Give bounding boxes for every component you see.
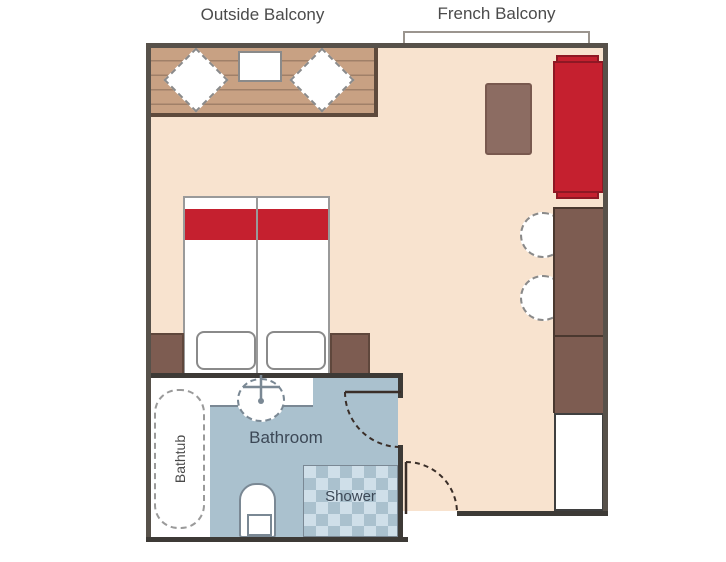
nightstand bbox=[148, 333, 184, 375]
bathtub-label: Bathtub bbox=[170, 399, 190, 519]
toilet-icon bbox=[239, 483, 276, 538]
balcony-table bbox=[238, 51, 282, 82]
sofa-seat bbox=[553, 61, 604, 193]
bathroom-wall-right bbox=[398, 373, 403, 398]
bathroom-wall-bottom bbox=[146, 537, 408, 542]
side-table bbox=[485, 83, 532, 155]
bathroom-wall-right bbox=[398, 445, 403, 542]
wall-right bbox=[603, 43, 608, 516]
closet bbox=[554, 413, 604, 511]
outside-balcony-label: Outside Balcony bbox=[146, 5, 379, 25]
desk-counter bbox=[553, 207, 603, 413]
toilet-seat bbox=[247, 514, 272, 536]
counter-divider bbox=[555, 335, 603, 337]
sink-icon bbox=[237, 378, 285, 422]
french-balcony-label: French Balcony bbox=[403, 4, 590, 24]
sofa bbox=[551, 55, 603, 195]
bathroom-label: Bathroom bbox=[211, 428, 361, 448]
cabin-floor-plan: Outside Balcony French Balcony Bathroom … bbox=[0, 0, 726, 562]
shower-label: Shower bbox=[303, 488, 398, 505]
wall-bottom bbox=[457, 511, 608, 516]
wall-left bbox=[146, 43, 151, 542]
wall-top bbox=[146, 43, 608, 48]
nightstand bbox=[330, 333, 370, 375]
pillow-icon bbox=[266, 331, 326, 370]
pillow-icon bbox=[196, 331, 256, 370]
bathroom-wall-top bbox=[151, 373, 403, 378]
double-bed bbox=[183, 196, 330, 375]
